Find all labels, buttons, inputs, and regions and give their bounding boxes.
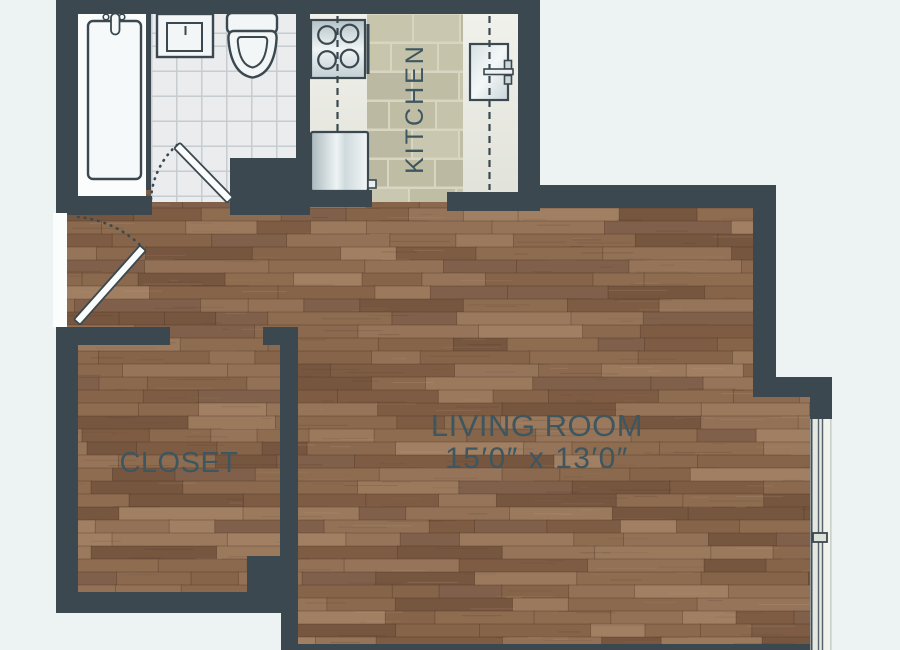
bathroom-sink [157,14,213,57]
living-room-dimensions: 15′0″ x 13′0″ [387,444,687,474]
floor-plan: LIVING ROOM 15′0″ x 13′0″ CLOSET KITCHEN [0,0,900,650]
bathtub [88,14,141,180]
toilet [227,13,277,78]
window-handle [813,533,827,542]
kitchen-label-text: KITCHEN [401,43,430,174]
closet-label: CLOSET [104,449,254,478]
kitchen-label: KITCHEN [367,14,463,202]
entry-door [74,217,146,325]
bathroom-door [151,143,233,203]
window-frame [812,419,831,650]
living-room-label: LIVING ROOM [387,410,687,441]
refrigerator [470,16,513,190]
refrigerator-handle [484,69,513,75]
